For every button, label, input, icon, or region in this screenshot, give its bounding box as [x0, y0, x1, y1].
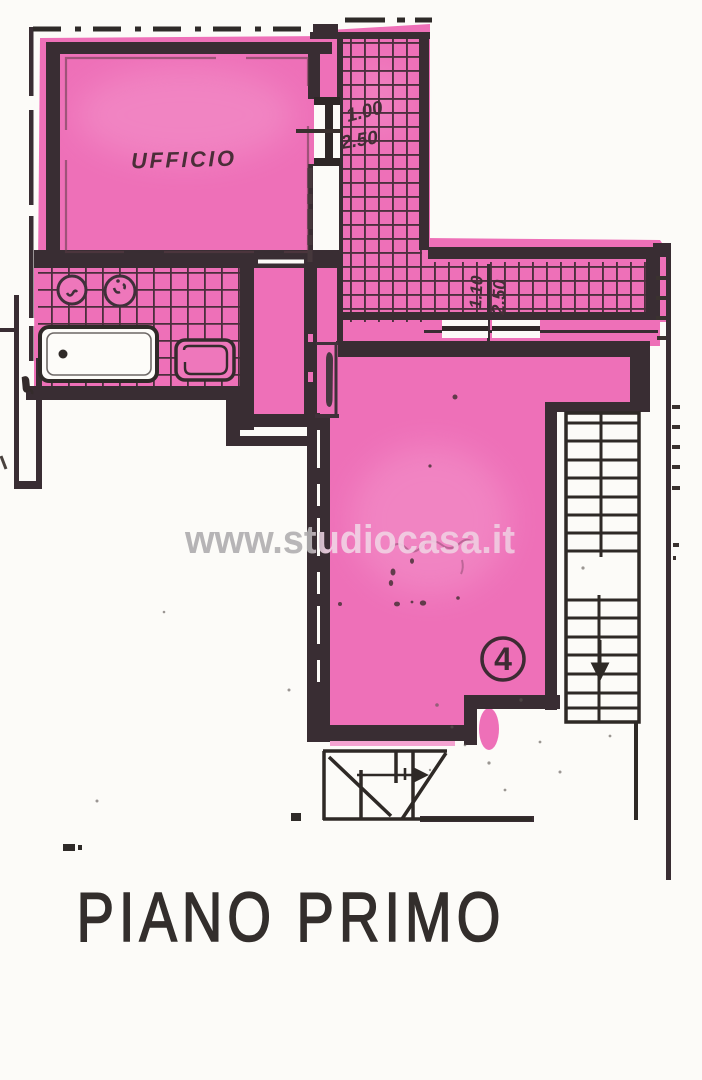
svg-text:2.50: 2.50	[488, 279, 510, 316]
svg-text:PIANO PRIMO: PIANO PRIMO	[76, 878, 505, 956]
svg-text:UFFICIO: UFFICIO	[131, 146, 238, 174]
svg-text:www.studiocasa.it: www.studiocasa.it	[184, 518, 515, 562]
svg-text:4: 4	[494, 641, 512, 677]
svg-text:1.10: 1.10	[466, 275, 487, 310]
